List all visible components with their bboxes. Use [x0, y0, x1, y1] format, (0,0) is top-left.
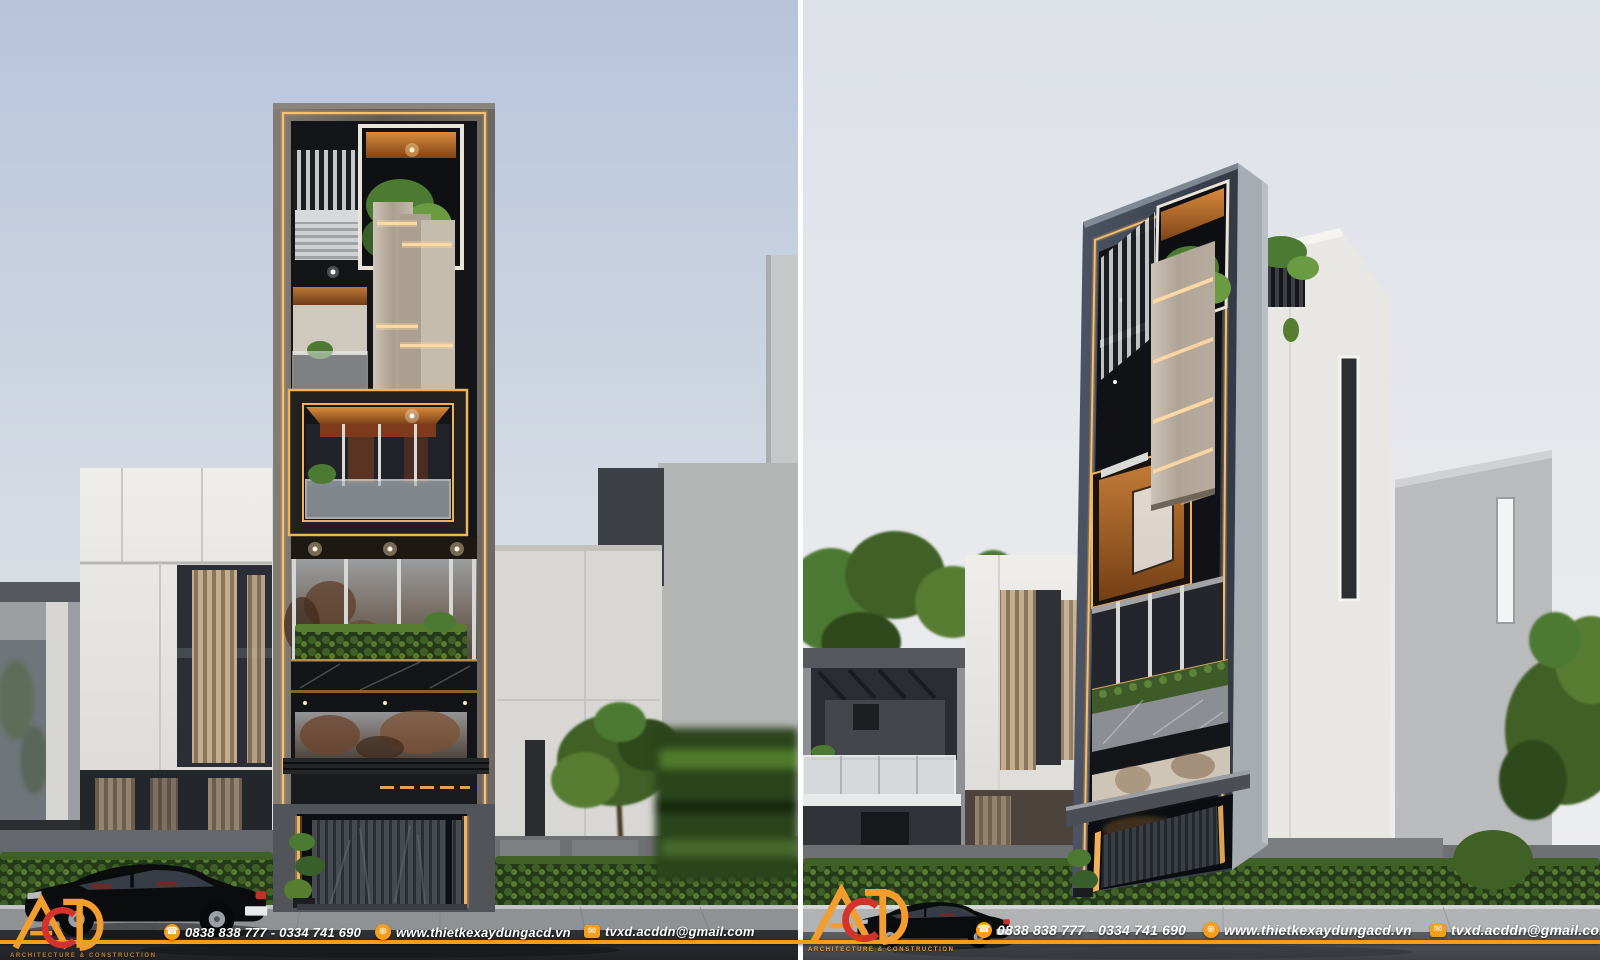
contact-phone-left: ☎ 0838 838 777 - 0334 741 690 [164, 924, 361, 940]
main-tower-elevation [273, 103, 495, 912]
contact-phone-right: ☎ 0838 838 777 - 0334 741 690 [976, 922, 1186, 938]
road-wet-shadow [140, 942, 620, 958]
render-front-elevation [0, 0, 798, 960]
tower-light-band [291, 537, 477, 559]
globe-icon: ⊕ [1203, 922, 1219, 938]
acd-logo-left: ACD ARCHITECTURE & CONSTRUCTION [10, 894, 157, 959]
phone-number: 0838 838 777 - 0334 741 690 [997, 922, 1186, 938]
logo-tagline: ARCHITECTURE & CONSTRUCTION [10, 953, 157, 959]
website-url: www.thietkexaydungacd.vn [396, 925, 571, 940]
tower-glass-floor [284, 559, 477, 662]
email-icon: ✉ [584, 925, 600, 938]
contact-email-left: ✉ tvxd.acddn@gmail.com [584, 924, 755, 939]
email-address: tvxd.acddn@gmail.com [605, 924, 755, 939]
tower-garage [273, 804, 495, 912]
cascade-panels-perspective [1151, 241, 1215, 511]
render-street-perspective [803, 0, 1600, 960]
architecture-render-sheet: ACD ARCHITECTURE & CONSTRUCTION ACD ARCH… [0, 0, 1600, 960]
acd-logo-mark [808, 884, 926, 946]
contact-website-right: ⊕ www.thietkexaydungacd.vn [1203, 922, 1412, 938]
email-address: tvxd.acddn@gmail.com [1451, 922, 1600, 938]
panel-divider [798, 0, 803, 960]
email-icon: ✉ [1430, 924, 1446, 937]
contact-website-left: ⊕ www.thietkexaydungacd.vn [375, 924, 571, 940]
globe-icon: ⊕ [375, 924, 391, 940]
website-url: www.thietkexaydungacd.vn [1224, 922, 1412, 938]
villa-left [803, 648, 969, 870]
tower-marble-planter [291, 659, 477, 693]
tower-lower-glass [283, 693, 489, 804]
brand-orange-rule [0, 940, 1600, 944]
acd-logo-mark [10, 894, 120, 952]
acd-logo-right: ACD ARCHITECTURE & CONSTRUCTION [808, 884, 955, 953]
contact-email-right: ✉ tvxd.acddn@gmail.com [1430, 922, 1600, 938]
logo-tagline: ARCHITECTURE & CONSTRUCTION [808, 947, 955, 953]
tower-framed-balcony [289, 390, 467, 535]
elevation-scene [0, 0, 798, 960]
phone-icon: ☎ [164, 924, 180, 940]
foreground-bush-blur [655, 728, 798, 880]
phone-icon: ☎ [976, 922, 992, 938]
main-tower-perspective [1066, 163, 1268, 897]
perspective-scene [803, 0, 1600, 960]
phone-number: 0838 838 777 - 0334 741 690 [185, 925, 361, 940]
